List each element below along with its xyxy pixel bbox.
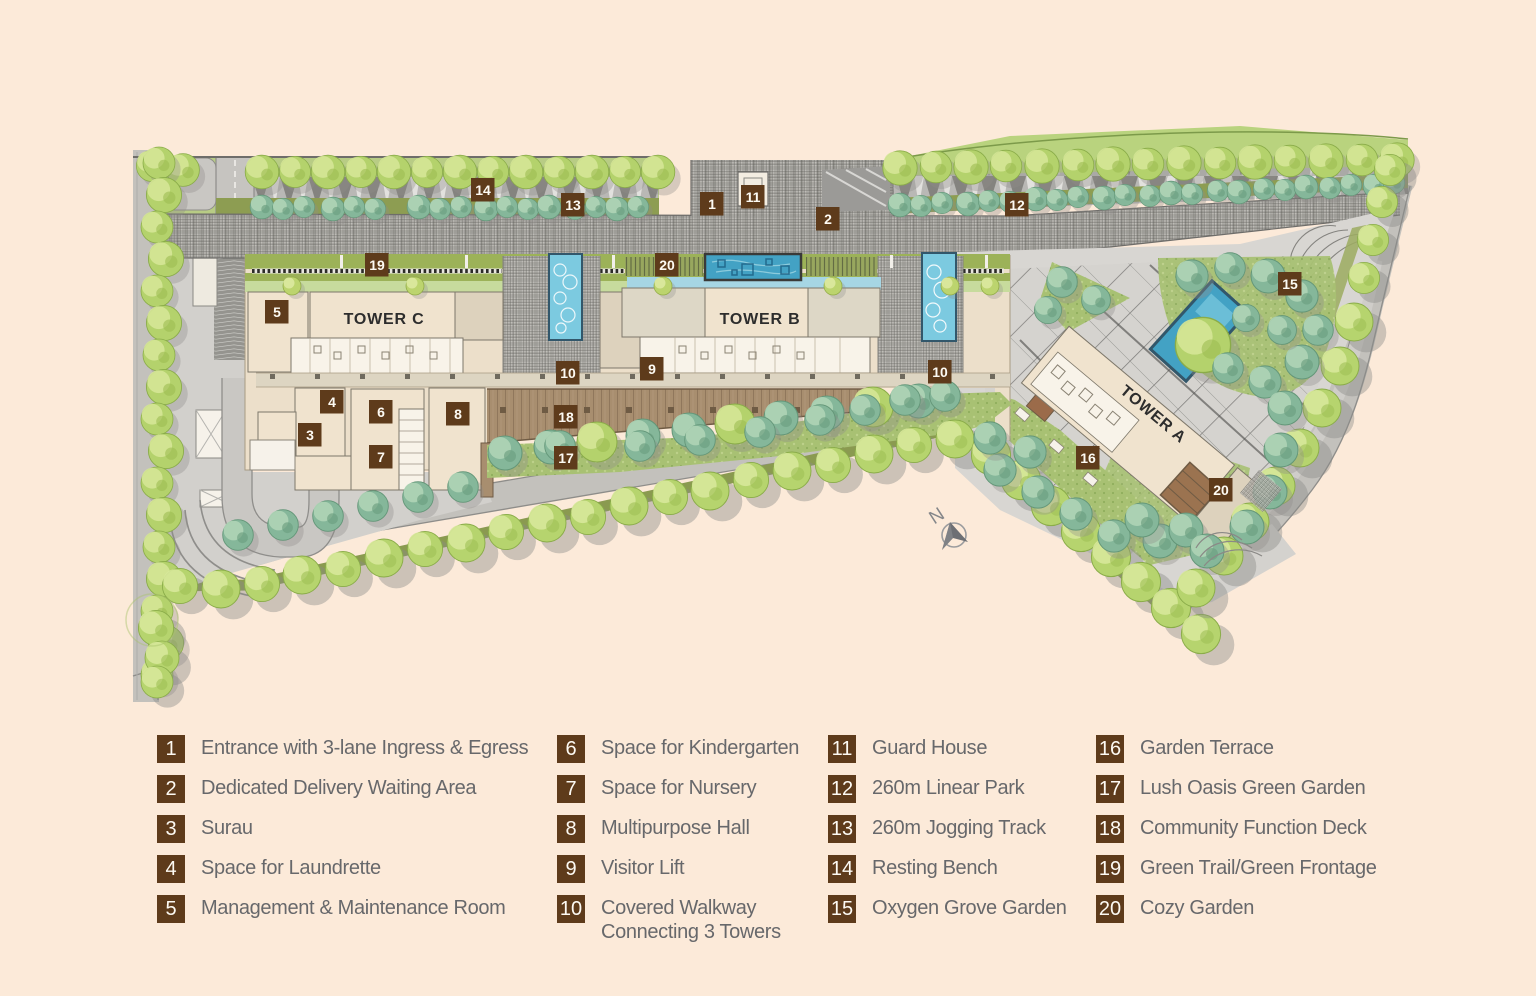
svg-text:4: 4 bbox=[328, 394, 336, 410]
svg-text:9: 9 bbox=[648, 361, 656, 377]
svg-text:11: 11 bbox=[746, 189, 761, 205]
svg-text:10: 10 bbox=[560, 365, 576, 381]
svg-text:14: 14 bbox=[475, 182, 491, 198]
svg-text:15: 15 bbox=[1282, 276, 1298, 292]
svg-text:5: 5 bbox=[273, 304, 281, 320]
svg-text:12: 12 bbox=[1009, 197, 1025, 213]
svg-text:7: 7 bbox=[377, 449, 385, 465]
svg-text:3: 3 bbox=[306, 427, 314, 443]
svg-text:13: 13 bbox=[565, 197, 581, 213]
svg-text:2: 2 bbox=[824, 211, 832, 227]
svg-text:19: 19 bbox=[369, 257, 385, 273]
svg-text:20: 20 bbox=[1213, 482, 1229, 498]
svg-text:TOWER B: TOWER B bbox=[720, 311, 801, 328]
svg-text:17: 17 bbox=[558, 450, 574, 466]
svg-text:18: 18 bbox=[558, 409, 574, 425]
svg-text:1: 1 bbox=[708, 196, 716, 212]
svg-text:6: 6 bbox=[377, 404, 385, 420]
svg-text:10: 10 bbox=[932, 364, 948, 380]
svg-text:8: 8 bbox=[454, 406, 462, 422]
svg-text:TOWER C: TOWER C bbox=[344, 311, 425, 328]
svg-text:20: 20 bbox=[659, 257, 675, 273]
svg-text:16: 16 bbox=[1080, 450, 1096, 466]
